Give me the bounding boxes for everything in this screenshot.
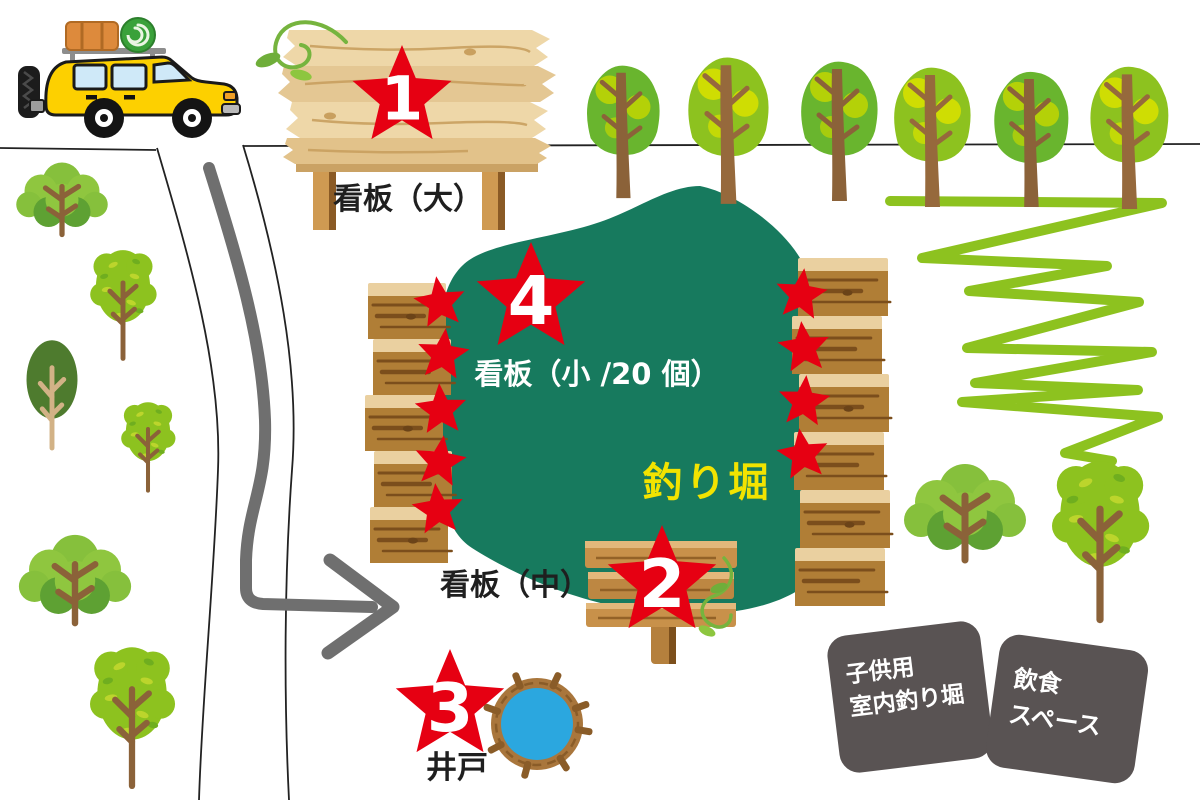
kids-indoor-pond-badge: 子供用 室内釣り堀 (825, 619, 995, 775)
zigzag-line (890, 201, 1162, 461)
marker-number: 2 (585, 505, 739, 659)
fishing-pond-map: 看板（大） 看板（小 /20 個） 釣り堀 看板（中） 井戸 子供用 室内釣り堀… (0, 0, 1200, 800)
tree-d2 (688, 58, 768, 204)
marker-star-1: 1 (332, 27, 473, 168)
tree-d2 (1090, 67, 1168, 209)
zigzag-track (890, 201, 1162, 461)
tree-d1 (994, 72, 1068, 207)
tree-b (90, 250, 156, 358)
sign-medium-label: 看板（中） (440, 560, 590, 604)
tree-d1 (587, 66, 660, 198)
marker-number: 4 (454, 222, 608, 376)
marker-number: 3 (373, 629, 527, 783)
sign-large-label: 看板（大） (333, 174, 483, 218)
marker-star-2: 2 (585, 505, 739, 659)
tree-a (19, 535, 131, 623)
tree-b (90, 647, 175, 786)
plank (800, 490, 892, 548)
tree-a (16, 163, 108, 235)
food-space-badge: 飲食 スペース (983, 632, 1150, 786)
marker-number: 1 (332, 27, 473, 168)
pond-label: 釣り堀 (643, 450, 772, 508)
tree-b (121, 402, 175, 490)
marker-star-4: 4 (454, 222, 608, 376)
tree-b (1052, 461, 1149, 619)
tree-d2 (894, 68, 970, 207)
marker-star-3: 3 (373, 629, 527, 783)
tree-d1 (801, 62, 877, 201)
tree-c (27, 340, 78, 448)
tree-a (904, 464, 1026, 560)
plank (795, 548, 887, 606)
road (157, 145, 294, 800)
car (18, 18, 240, 138)
